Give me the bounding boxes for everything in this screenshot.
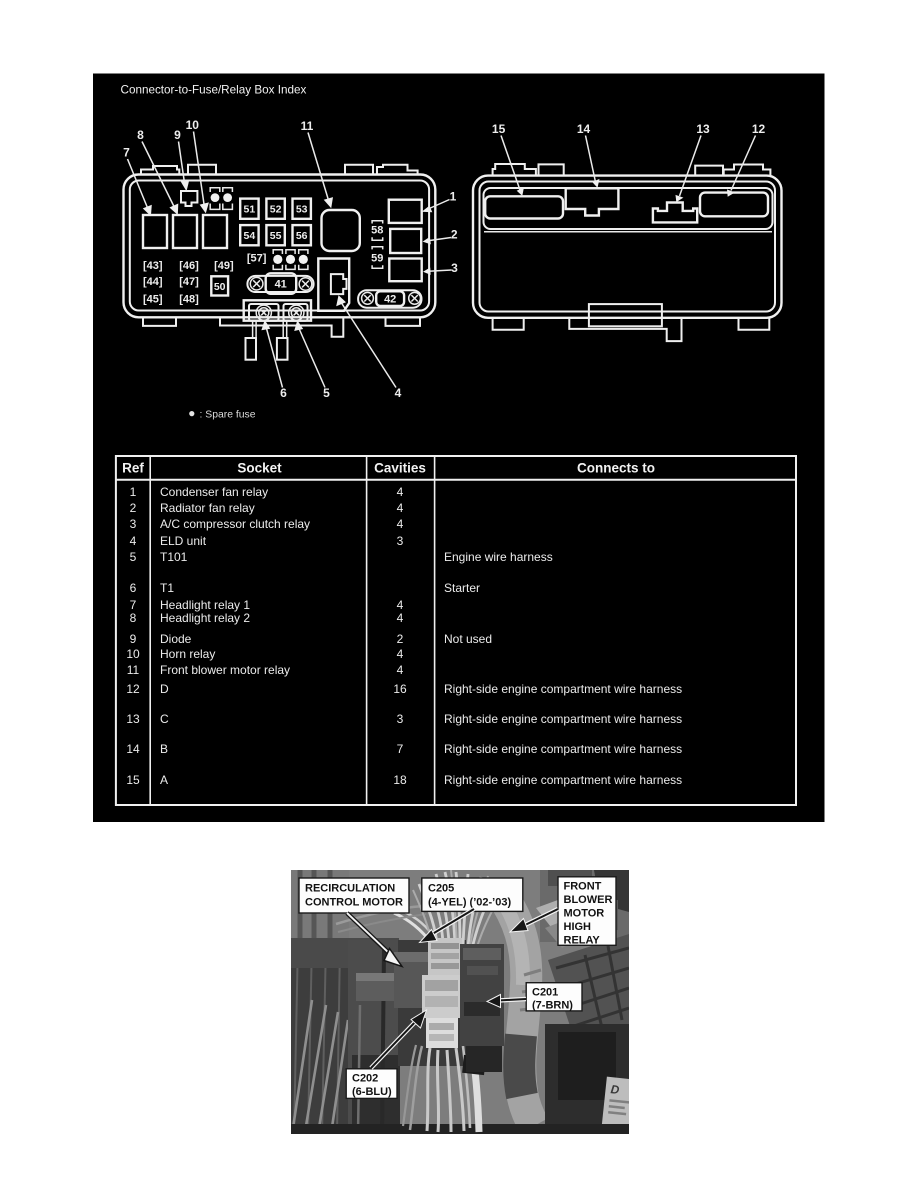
svg-text:Horn relay: Horn relay — [160, 647, 215, 661]
svg-text:Headlight relay 1: Headlight relay 1 — [160, 598, 250, 612]
svg-text:Connector-to-Fuse/Relay Box In: Connector-to-Fuse/Relay Box Index — [121, 83, 307, 96]
svg-text:Starter: Starter — [444, 581, 480, 595]
svg-text:(4-YEL) (’02-’03): (4-YEL) (’02-’03) — [428, 897, 511, 909]
svg-text:51: 51 — [244, 204, 256, 216]
svg-text:(6-BLU): (6-BLU) — [352, 1086, 392, 1098]
svg-text:4: 4 — [397, 517, 404, 531]
svg-text:CONTROL MOTOR: CONTROL MOTOR — [305, 897, 403, 909]
svg-text:4: 4 — [397, 647, 404, 661]
svg-text:C201: C201 — [532, 987, 558, 999]
svg-text:2: 2 — [451, 227, 458, 241]
svg-text:4: 4 — [130, 534, 137, 548]
svg-text:15: 15 — [492, 122, 506, 136]
svg-text:7: 7 — [130, 598, 137, 612]
svg-text:Radiator fan relay: Radiator fan relay — [160, 501, 255, 515]
svg-text:[43]: [43] — [143, 260, 163, 272]
svg-text:Not used: Not used — [444, 632, 492, 646]
svg-text:Right-side engine compartment: Right-side engine compartment wire harne… — [444, 712, 682, 726]
svg-text:10: 10 — [126, 647, 140, 661]
svg-text:[44]: [44] — [143, 276, 163, 288]
svg-text:9: 9 — [130, 632, 137, 646]
svg-text:Engine wire harness: Engine wire harness — [444, 550, 553, 564]
svg-text:5: 5 — [323, 386, 330, 400]
svg-text:[49]: [49] — [214, 260, 234, 272]
svg-text:C205: C205 — [428, 883, 454, 895]
svg-text:4: 4 — [397, 485, 404, 499]
svg-text:52: 52 — [270, 204, 282, 216]
svg-text:Right-side engine compartment: Right-side engine compartment wire harne… — [444, 773, 682, 787]
svg-text:14: 14 — [126, 742, 140, 756]
svg-text:T101: T101 — [160, 550, 188, 564]
svg-text:MOTOR: MOTOR — [564, 908, 605, 920]
svg-text:[47]: [47] — [179, 276, 199, 288]
svg-text:4: 4 — [397, 611, 404, 625]
svg-text:15: 15 — [126, 773, 140, 787]
svg-text:B: B — [160, 742, 168, 756]
svg-text:11: 11 — [301, 119, 314, 133]
svg-text:6: 6 — [130, 581, 137, 595]
svg-text:42: 42 — [384, 294, 396, 306]
svg-text:Connects to: Connects to — [577, 461, 655, 476]
svg-text:(7-BRN): (7-BRN) — [532, 1000, 573, 1012]
svg-text:Socket: Socket — [237, 461, 282, 476]
svg-text:11: 11 — [127, 663, 140, 677]
svg-text:FRONT: FRONT — [564, 881, 602, 893]
svg-text:Diode: Diode — [160, 632, 192, 646]
svg-text:7: 7 — [397, 742, 404, 756]
svg-text:C202: C202 — [352, 1073, 378, 1085]
svg-text:5: 5 — [130, 550, 137, 564]
svg-text:1: 1 — [450, 189, 457, 203]
svg-text:ELD unit: ELD unit — [160, 534, 207, 548]
svg-text:Right-side engine compartment: Right-side engine compartment wire harne… — [444, 742, 682, 756]
svg-text:12: 12 — [752, 122, 766, 136]
svg-text:[57]: [57] — [247, 252, 267, 264]
svg-text:[46]: [46] — [179, 260, 199, 272]
svg-text:16: 16 — [393, 682, 407, 696]
svg-text:4: 4 — [397, 501, 404, 515]
svg-text:[45]: [45] — [143, 294, 163, 306]
svg-text:Right-side engine compartment: Right-side engine compartment wire harne… — [444, 682, 682, 696]
svg-text:4: 4 — [395, 386, 402, 400]
svg-text:2: 2 — [130, 501, 137, 515]
svg-text:RECIRCULATION: RECIRCULATION — [305, 883, 395, 895]
svg-text:50: 50 — [214, 281, 226, 293]
svg-text:3: 3 — [451, 261, 458, 275]
svg-text:Condenser fan relay: Condenser fan relay — [160, 485, 268, 499]
svg-text:8: 8 — [137, 128, 144, 142]
svg-text:14: 14 — [577, 122, 591, 136]
svg-text:: Spare fuse: : Spare fuse — [200, 410, 256, 421]
svg-text:Front blower motor relay: Front blower motor relay — [160, 663, 290, 677]
svg-text:BLOWER: BLOWER — [564, 894, 613, 906]
svg-text:9: 9 — [174, 128, 181, 142]
svg-text:[48]: [48] — [179, 294, 199, 306]
svg-text:59: 59 — [371, 253, 383, 265]
svg-text:D: D — [610, 1082, 620, 1097]
svg-text:13: 13 — [126, 712, 140, 726]
svg-text:7: 7 — [123, 146, 130, 160]
svg-text:RELAY: RELAY — [564, 935, 601, 947]
svg-text:18: 18 — [393, 773, 407, 787]
svg-text:4: 4 — [397, 598, 404, 612]
svg-text:Cavities: Cavities — [374, 461, 426, 476]
svg-text:1: 1 — [130, 485, 137, 499]
svg-text:12: 12 — [126, 682, 140, 696]
svg-text:58: 58 — [371, 225, 383, 237]
svg-text:A/C compressor clutch relay: A/C compressor clutch relay — [160, 517, 310, 531]
svg-text:Ref: Ref — [122, 461, 144, 476]
svg-text:8: 8 — [130, 611, 137, 625]
svg-text:10: 10 — [186, 118, 200, 132]
svg-text:D: D — [160, 682, 169, 696]
svg-text:54: 54 — [244, 230, 256, 242]
svg-text:55: 55 — [270, 230, 282, 242]
svg-text:56: 56 — [296, 230, 308, 242]
svg-text:HIGH: HIGH — [564, 921, 592, 933]
svg-text:T1: T1 — [160, 581, 174, 595]
svg-text:3: 3 — [130, 517, 137, 531]
svg-text:C: C — [160, 712, 169, 726]
svg-text:53: 53 — [296, 204, 308, 216]
svg-text:6: 6 — [280, 386, 287, 400]
svg-text:A: A — [160, 773, 168, 787]
svg-text:2: 2 — [397, 632, 404, 646]
svg-text:4: 4 — [397, 663, 404, 677]
svg-text:13: 13 — [696, 122, 710, 136]
svg-text:3: 3 — [397, 712, 404, 726]
svg-text:Headlight relay 2: Headlight relay 2 — [160, 611, 250, 625]
svg-text:41: 41 — [275, 279, 287, 291]
svg-text:3: 3 — [397, 534, 404, 548]
